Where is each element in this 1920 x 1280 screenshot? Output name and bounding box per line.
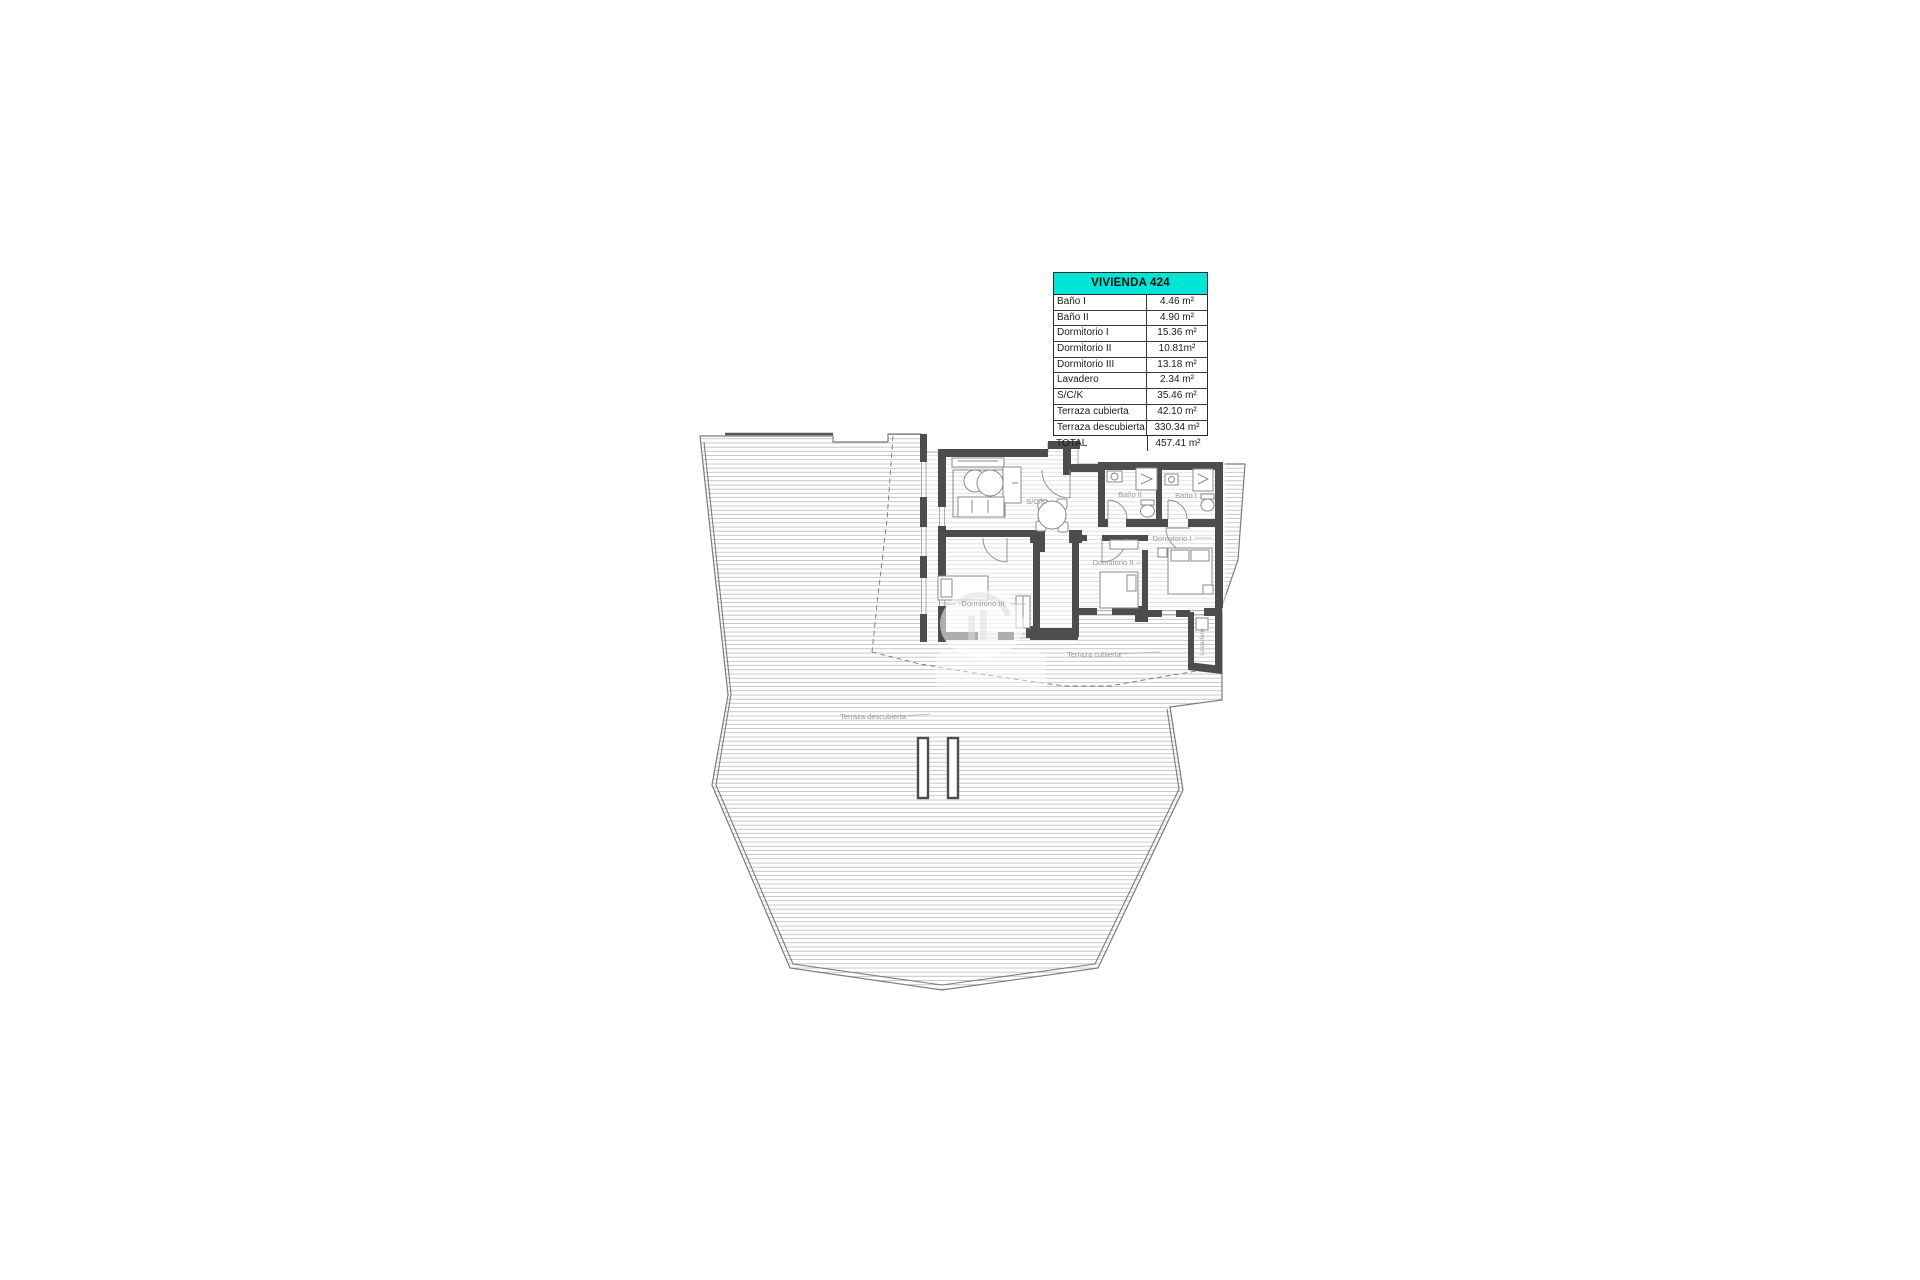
room-name-cell: Lavadero <box>1054 373 1146 388</box>
table-row: S/C/K35.46 m² <box>1054 389 1207 405</box>
label-dorm1: Dormitorio I <box>1153 534 1192 543</box>
toilet <box>1141 505 1155 517</box>
table-row: Dormitorio I15.36 m² <box>1054 326 1207 342</box>
area-table-total-row: TOTAL 457.41 m² <box>1053 436 1208 451</box>
total-label: TOTAL <box>1053 436 1147 451</box>
room-name-cell: Terraza cubierta <box>1054 405 1146 420</box>
area-value-cell: 13.18 m² <box>1146 358 1207 373</box>
label-bano2: Baño II <box>1118 490 1142 499</box>
label-sck: S/C/K <box>1026 497 1046 506</box>
floor-plan-drawing: S/C/K Baño II Baño I Dormitorio I Dormit… <box>0 0 1920 1280</box>
room-name-cell: Dormitorio II <box>1054 342 1146 357</box>
label-lavadero: Lavadero <box>1199 628 1206 655</box>
area-table-rows: Baño I4.46 m²Baño II4.90 m²Dormitorio I1… <box>1054 295 1207 435</box>
area-value-cell: 4.46 m² <box>1146 295 1207 310</box>
label-dorm3: Dormitorio III <box>962 599 1005 608</box>
table-row: Baño II4.90 m² <box>1054 311 1207 327</box>
table-row: Lavadero2.34 m² <box>1054 373 1207 389</box>
label-bano1: Baño I <box>1175 491 1197 500</box>
table-row: Dormitorio III13.18 m² <box>1054 358 1207 374</box>
area-value-cell: 10.81m² <box>1146 342 1207 357</box>
room-name-cell: Dormitorio I <box>1054 326 1146 341</box>
tv-sideboard <box>952 458 1004 467</box>
washer <box>1196 618 1208 630</box>
sofa-chaise <box>1003 467 1021 503</box>
total-value: 457.41 m² <box>1147 436 1208 451</box>
area-table-box: VIVIENDA 424 Baño I4.46 m²Baño II4.90 m²… <box>1053 272 1208 436</box>
floor-plan-sheet: VIVIENDA 424 Baño I4.46 m²Baño II4.90 m²… <box>0 0 1920 1280</box>
area-value-cell: 35.46 m² <box>1146 389 1207 404</box>
area-table-title: VIVIENDA 424 <box>1054 273 1207 295</box>
area-value-cell: 2.34 m² <box>1146 373 1207 388</box>
label-terraza-cubierta: Terraza cubierta <box>1067 650 1122 659</box>
label-terraza-descubierta: Terraza descubierta <box>840 712 907 721</box>
shower <box>1193 469 1213 491</box>
room-name-cell: S/C/K <box>1054 389 1146 404</box>
table-row: Terraza descubierta330.34 m² <box>1054 421 1207 436</box>
area-value-cell: 42.10 m² <box>1146 405 1207 420</box>
label-dorm2: Dormitorio II <box>1093 558 1134 567</box>
room-name-cell: Dormitorio III <box>1054 358 1146 373</box>
area-value-cell: 4.90 m² <box>1146 311 1207 326</box>
area-table: VIVIENDA 424 Baño I4.46 m²Baño II4.90 m²… <box>1053 272 1208 451</box>
sofa <box>958 497 1004 517</box>
room-name-cell: Terraza descubierta <box>1054 421 1146 436</box>
table-row: Terraza cubierta42.10 m² <box>1054 405 1207 421</box>
area-value-cell: 15.36 m² <box>1146 326 1207 341</box>
room-name-cell: Baño I <box>1054 295 1146 310</box>
coffee-table <box>977 470 1003 496</box>
table-row: Dormitorio II10.81m² <box>1054 342 1207 358</box>
room-name-cell: Baño II <box>1054 311 1146 326</box>
toilet <box>1201 499 1214 511</box>
table-row: Baño I4.46 m² <box>1054 295 1207 311</box>
shower <box>1136 468 1157 490</box>
area-value-cell: 330.34 m² <box>1146 421 1207 436</box>
